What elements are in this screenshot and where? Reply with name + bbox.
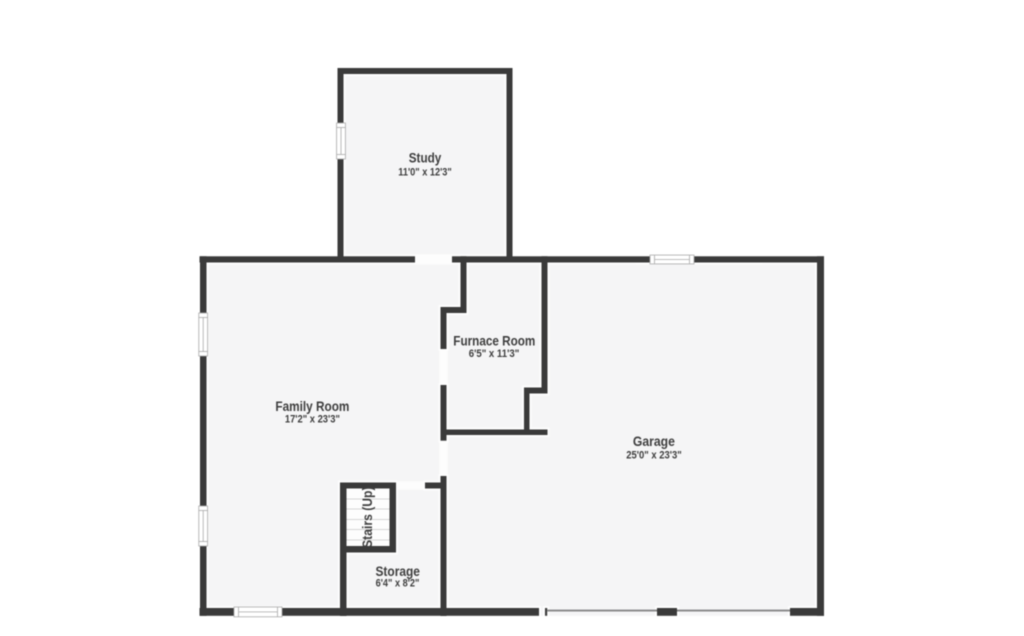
svg-text:6'5" x 11'3": 6'5" x 11'3" (469, 348, 520, 360)
svg-text:17'2" x 23'3": 17'2" x 23'3" (285, 414, 340, 426)
svg-text:Garage: Garage (633, 433, 675, 449)
svg-text:25'0" x 23'3": 25'0" x 23'3" (626, 449, 682, 461)
svg-text:Study: Study (409, 149, 442, 165)
svg-text:Furnace Room: Furnace Room (453, 332, 535, 348)
svg-text:Storage: Storage (375, 563, 420, 579)
svg-text:6'4" x 8'2": 6'4" x 8'2" (376, 578, 420, 590)
svg-text:Stairs (Up): Stairs (Up) (359, 486, 375, 548)
svg-text:11'0" x 12'3": 11'0" x 12'3" (398, 167, 452, 179)
svg-text:Family Room: Family Room (275, 398, 349, 414)
